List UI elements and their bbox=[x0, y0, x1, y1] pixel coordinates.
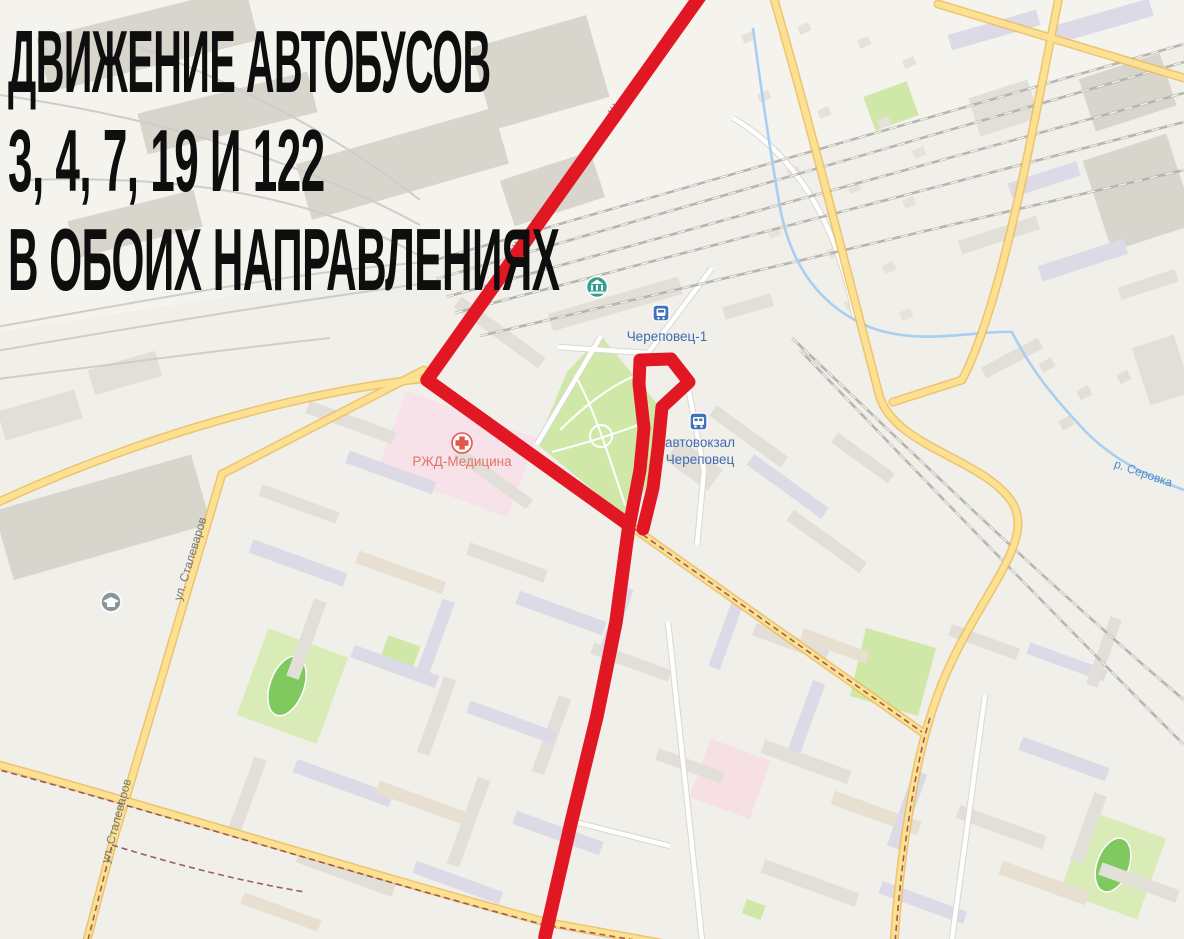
poster-title: Движение автобусов 3, 4, 7, 19 и 122 в о… bbox=[8, 12, 1157, 309]
school-icon bbox=[101, 592, 121, 612]
title-line-1: Движение автобусов bbox=[8, 12, 525, 111]
bus-station-label-line2: Череповец bbox=[666, 452, 735, 467]
clinic-label: РЖД-Медицина bbox=[412, 454, 512, 469]
bus-station-label-line1: автовокзал bbox=[665, 435, 735, 450]
title-line-2: 3, 4, 7, 19 и 122 bbox=[8, 111, 582, 210]
railway-station-label: Череповец-1 bbox=[627, 329, 708, 344]
title-line-3: в обоих направлениях bbox=[8, 210, 559, 309]
medical-cross-icon bbox=[452, 433, 472, 453]
poster-canvas: Школьная ул. Школьная ул. ул. Сталеваров… bbox=[0, 0, 1184, 939]
bus-icon bbox=[690, 413, 707, 430]
